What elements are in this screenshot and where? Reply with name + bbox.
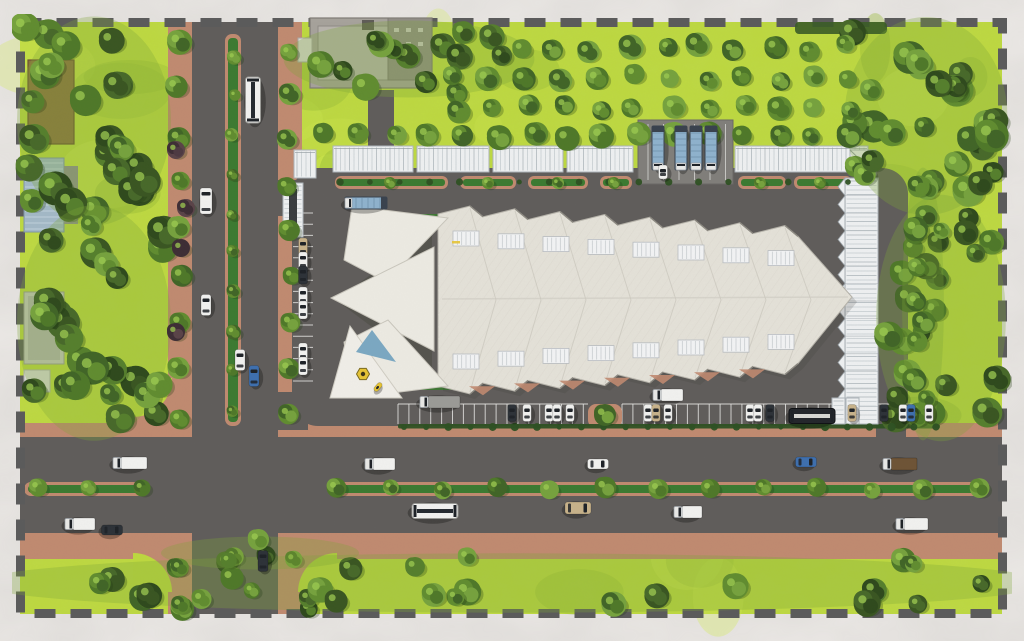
texture-overlay <box>20 22 1002 614</box>
site-plan-rendering <box>0 0 1024 641</box>
site-plan-canvas <box>0 0 1024 641</box>
grain <box>20 22 1002 614</box>
